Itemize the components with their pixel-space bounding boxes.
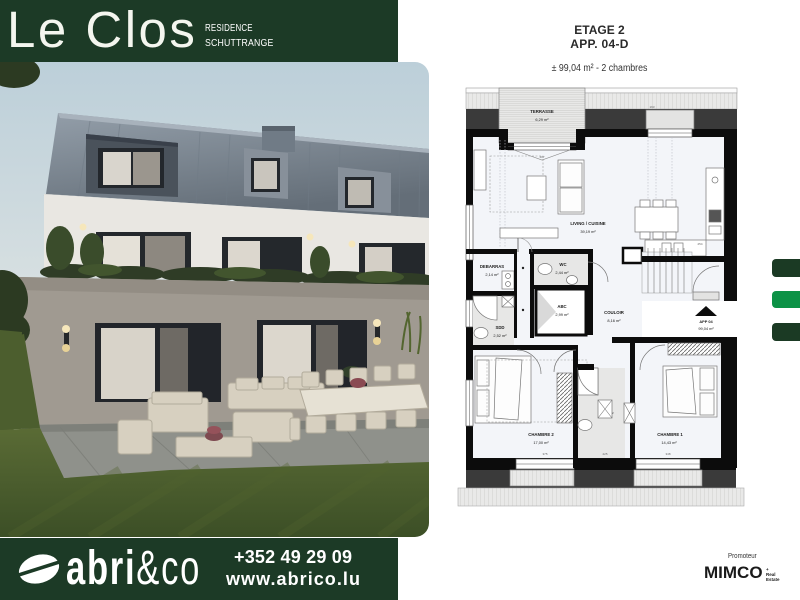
svg-text:COULOIR: COULOIR	[604, 310, 625, 315]
svg-text:CHAMBRE 1: CHAMBRE 1	[657, 432, 683, 437]
svg-text:WC: WC	[559, 262, 566, 267]
svg-text:2,14 m²: 2,14 m²	[485, 272, 499, 277]
svg-text:DEBARRAS: DEBARRAS	[480, 264, 504, 269]
svg-text:14,43 m²: 14,43 m²	[661, 440, 677, 445]
svg-text:254: 254	[697, 242, 702, 246]
svg-text:2,99 m²: 2,99 m²	[555, 312, 569, 317]
svg-text:TERRASSE: TERRASSE	[530, 109, 554, 114]
svg-text:ABC: ABC	[557, 304, 566, 309]
svg-text:99,04 m²: 99,04 m²	[698, 326, 714, 331]
svg-text:193: 193	[649, 105, 654, 109]
svg-text:SDD: SDD	[495, 325, 504, 330]
svg-text:CHAMBRE 2: CHAMBRE 2	[528, 432, 554, 437]
svg-text:375: 375	[542, 452, 547, 456]
svg-text:8,16 m²: 8,16 m²	[607, 318, 621, 323]
svg-text:APP 04: APP 04	[699, 319, 713, 324]
svg-text:39,19 m²: 39,19 m²	[580, 229, 596, 234]
svg-text:LIVING / CUISINE: LIVING / CUISINE	[570, 221, 605, 226]
svg-text:6,29 m²: 6,29 m²	[535, 117, 549, 122]
svg-text:2,44 m²: 2,44 m²	[555, 270, 569, 275]
svg-text:407: 407	[539, 155, 544, 159]
svg-text:17,00 m²: 17,00 m²	[533, 440, 549, 445]
svg-text:348: 348	[665, 452, 670, 456]
svg-text:225: 225	[602, 452, 607, 456]
svg-text:2,52 m²: 2,52 m²	[493, 333, 507, 338]
